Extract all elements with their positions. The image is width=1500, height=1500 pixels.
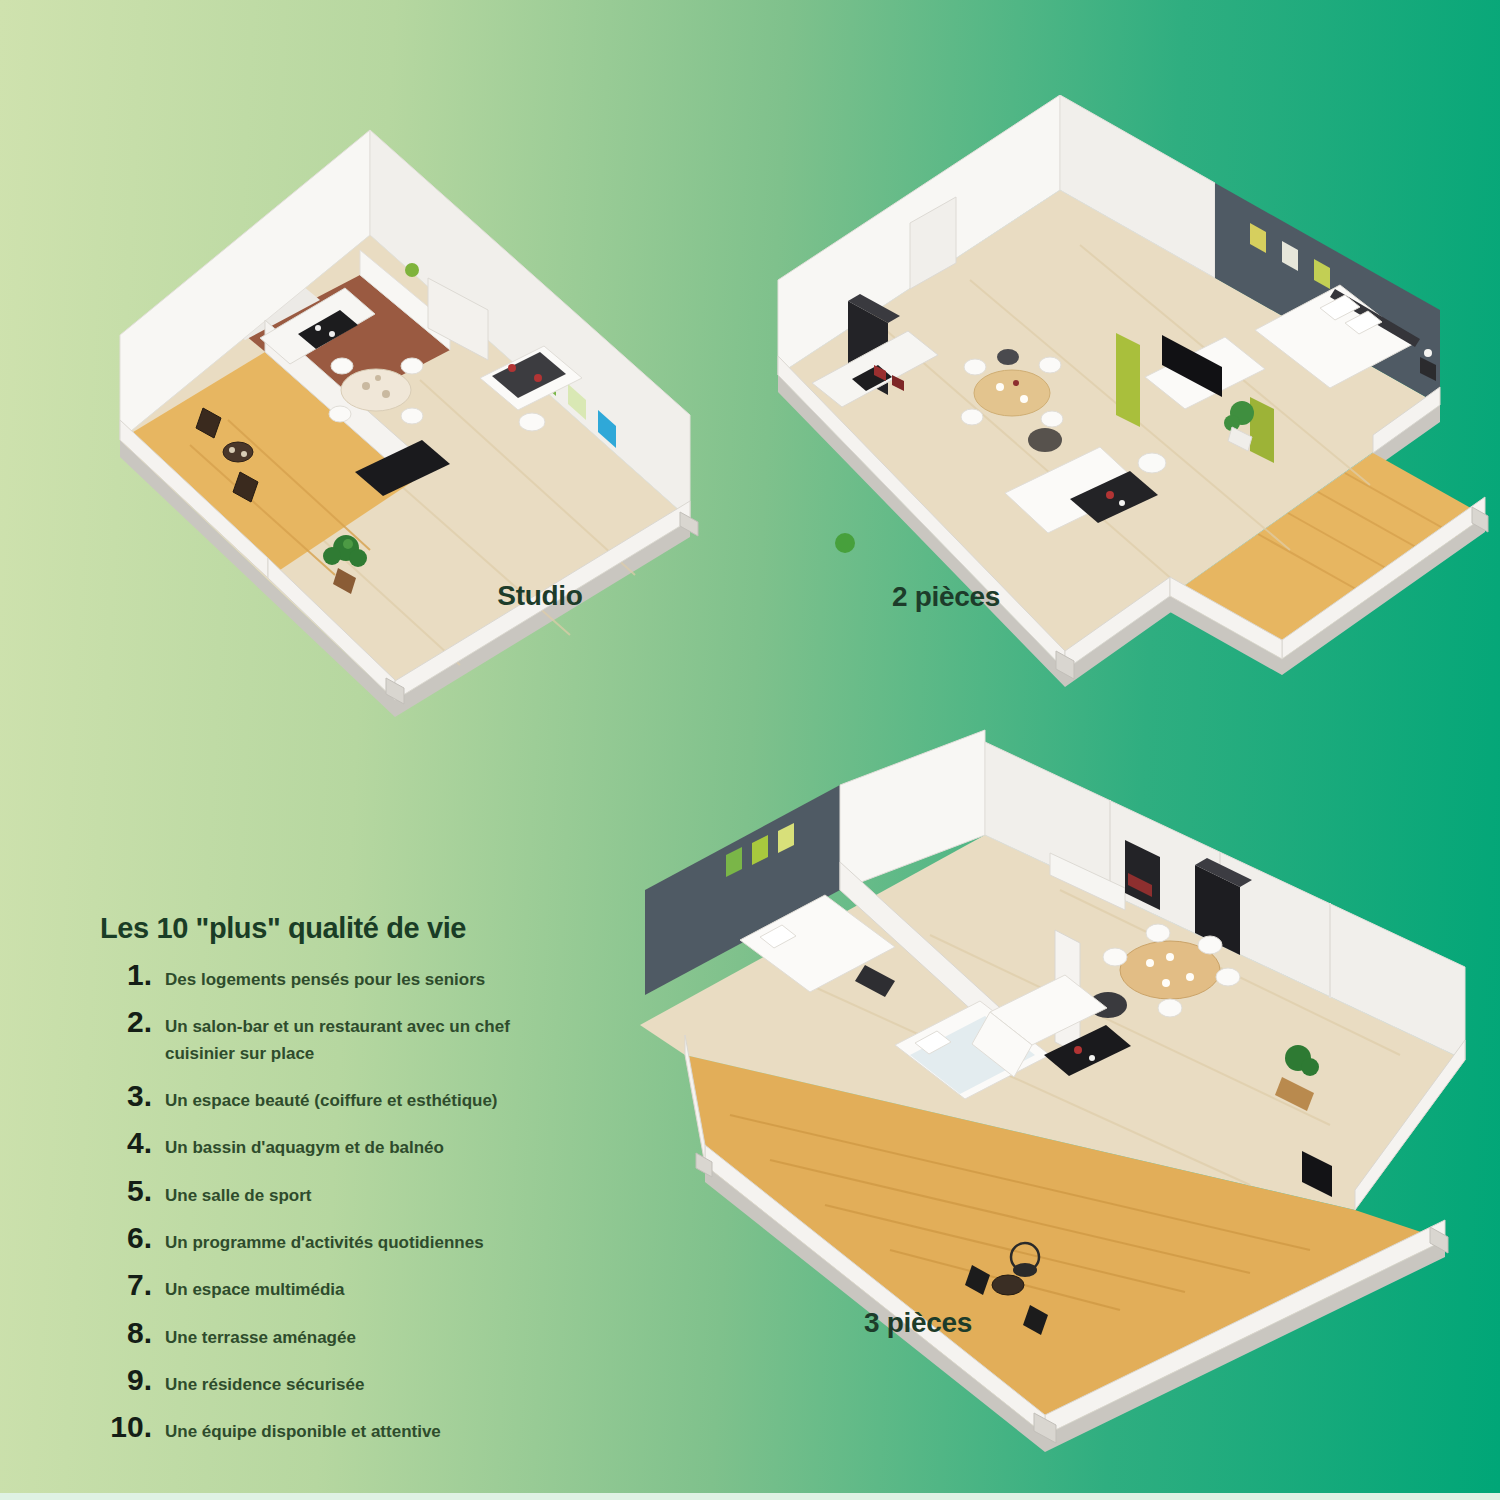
feature-number: 4. bbox=[100, 1127, 165, 1159]
features-title: Les 10 "plus" qualité de vie bbox=[100, 912, 595, 945]
feature-item: 8. Une terrasse aménagée bbox=[100, 1317, 595, 1351]
feature-number: 10. bbox=[100, 1411, 165, 1443]
feature-item: 2. Un salon-bar et un restaurant avec un… bbox=[100, 1006, 595, 1067]
studio-label: Studio bbox=[450, 580, 630, 612]
floorplan-3-pieces: 3 pièces bbox=[610, 725, 1490, 1465]
feature-number: 7. bbox=[100, 1269, 165, 1301]
feature-text: Un espace multimédia bbox=[165, 1277, 345, 1303]
floorplan-2-pieces: 2 pièces bbox=[760, 95, 1490, 740]
feature-text: Un bassin d'aquagym et de balnéo bbox=[165, 1135, 444, 1161]
feature-number: 2. bbox=[100, 1006, 165, 1038]
feature-item: 7. Un espace multimédia bbox=[100, 1269, 595, 1303]
feature-item: 6. Un programme d'activités quotidiennes bbox=[100, 1222, 595, 1256]
feature-number: 6. bbox=[100, 1222, 165, 1254]
feature-item: 3. Un espace beauté (coiffure et esthéti… bbox=[100, 1080, 595, 1114]
feature-text: Une résidence sécurisée bbox=[165, 1372, 364, 1398]
feature-text: Un programme d'activités quotidiennes bbox=[165, 1230, 484, 1256]
floorplan-2-pieces-illustration bbox=[760, 95, 1490, 740]
feature-number: 9. bbox=[100, 1364, 165, 1396]
feature-number: 3. bbox=[100, 1080, 165, 1112]
feature-text: Une terrasse aménagée bbox=[165, 1325, 356, 1351]
brochure-page: Studio bbox=[0, 0, 1500, 1500]
feature-text: Des logements pensés pour les seniors bbox=[165, 967, 485, 993]
2-pieces-label: 2 pièces bbox=[856, 581, 1036, 613]
feature-text: Un salon-bar et un restaurant avec un ch… bbox=[165, 1014, 565, 1067]
feature-item: 9. Une résidence sécurisée bbox=[100, 1364, 595, 1398]
features-panel: Les 10 "plus" qualité de vie 1. Des loge… bbox=[100, 912, 595, 1459]
feature-item: 1. Des logements pensés pour les seniors bbox=[100, 959, 595, 993]
floorplan-3-pieces-illustration bbox=[610, 725, 1490, 1465]
bottom-edge-strip bbox=[0, 1493, 1500, 1500]
feature-text: Un espace beauté (coiffure et esthétique… bbox=[165, 1088, 498, 1114]
feature-item: 5. Une salle de sport bbox=[100, 1175, 595, 1209]
feature-item: 4. Un bassin d'aquagym et de balnéo bbox=[100, 1127, 595, 1161]
floorplan-studio: Studio bbox=[60, 120, 710, 720]
feature-number: 5. bbox=[100, 1175, 165, 1207]
feature-number: 8. bbox=[100, 1317, 165, 1349]
3-pieces-label: 3 pièces bbox=[828, 1307, 1008, 1339]
feature-text: Une équipe disponible et attentive bbox=[165, 1419, 441, 1445]
feature-text: Une salle de sport bbox=[165, 1183, 311, 1209]
feature-number: 1. bbox=[100, 959, 165, 991]
feature-item: 10. Une équipe disponible et attentive bbox=[100, 1411, 595, 1445]
floorplan-studio-illustration bbox=[60, 120, 710, 720]
